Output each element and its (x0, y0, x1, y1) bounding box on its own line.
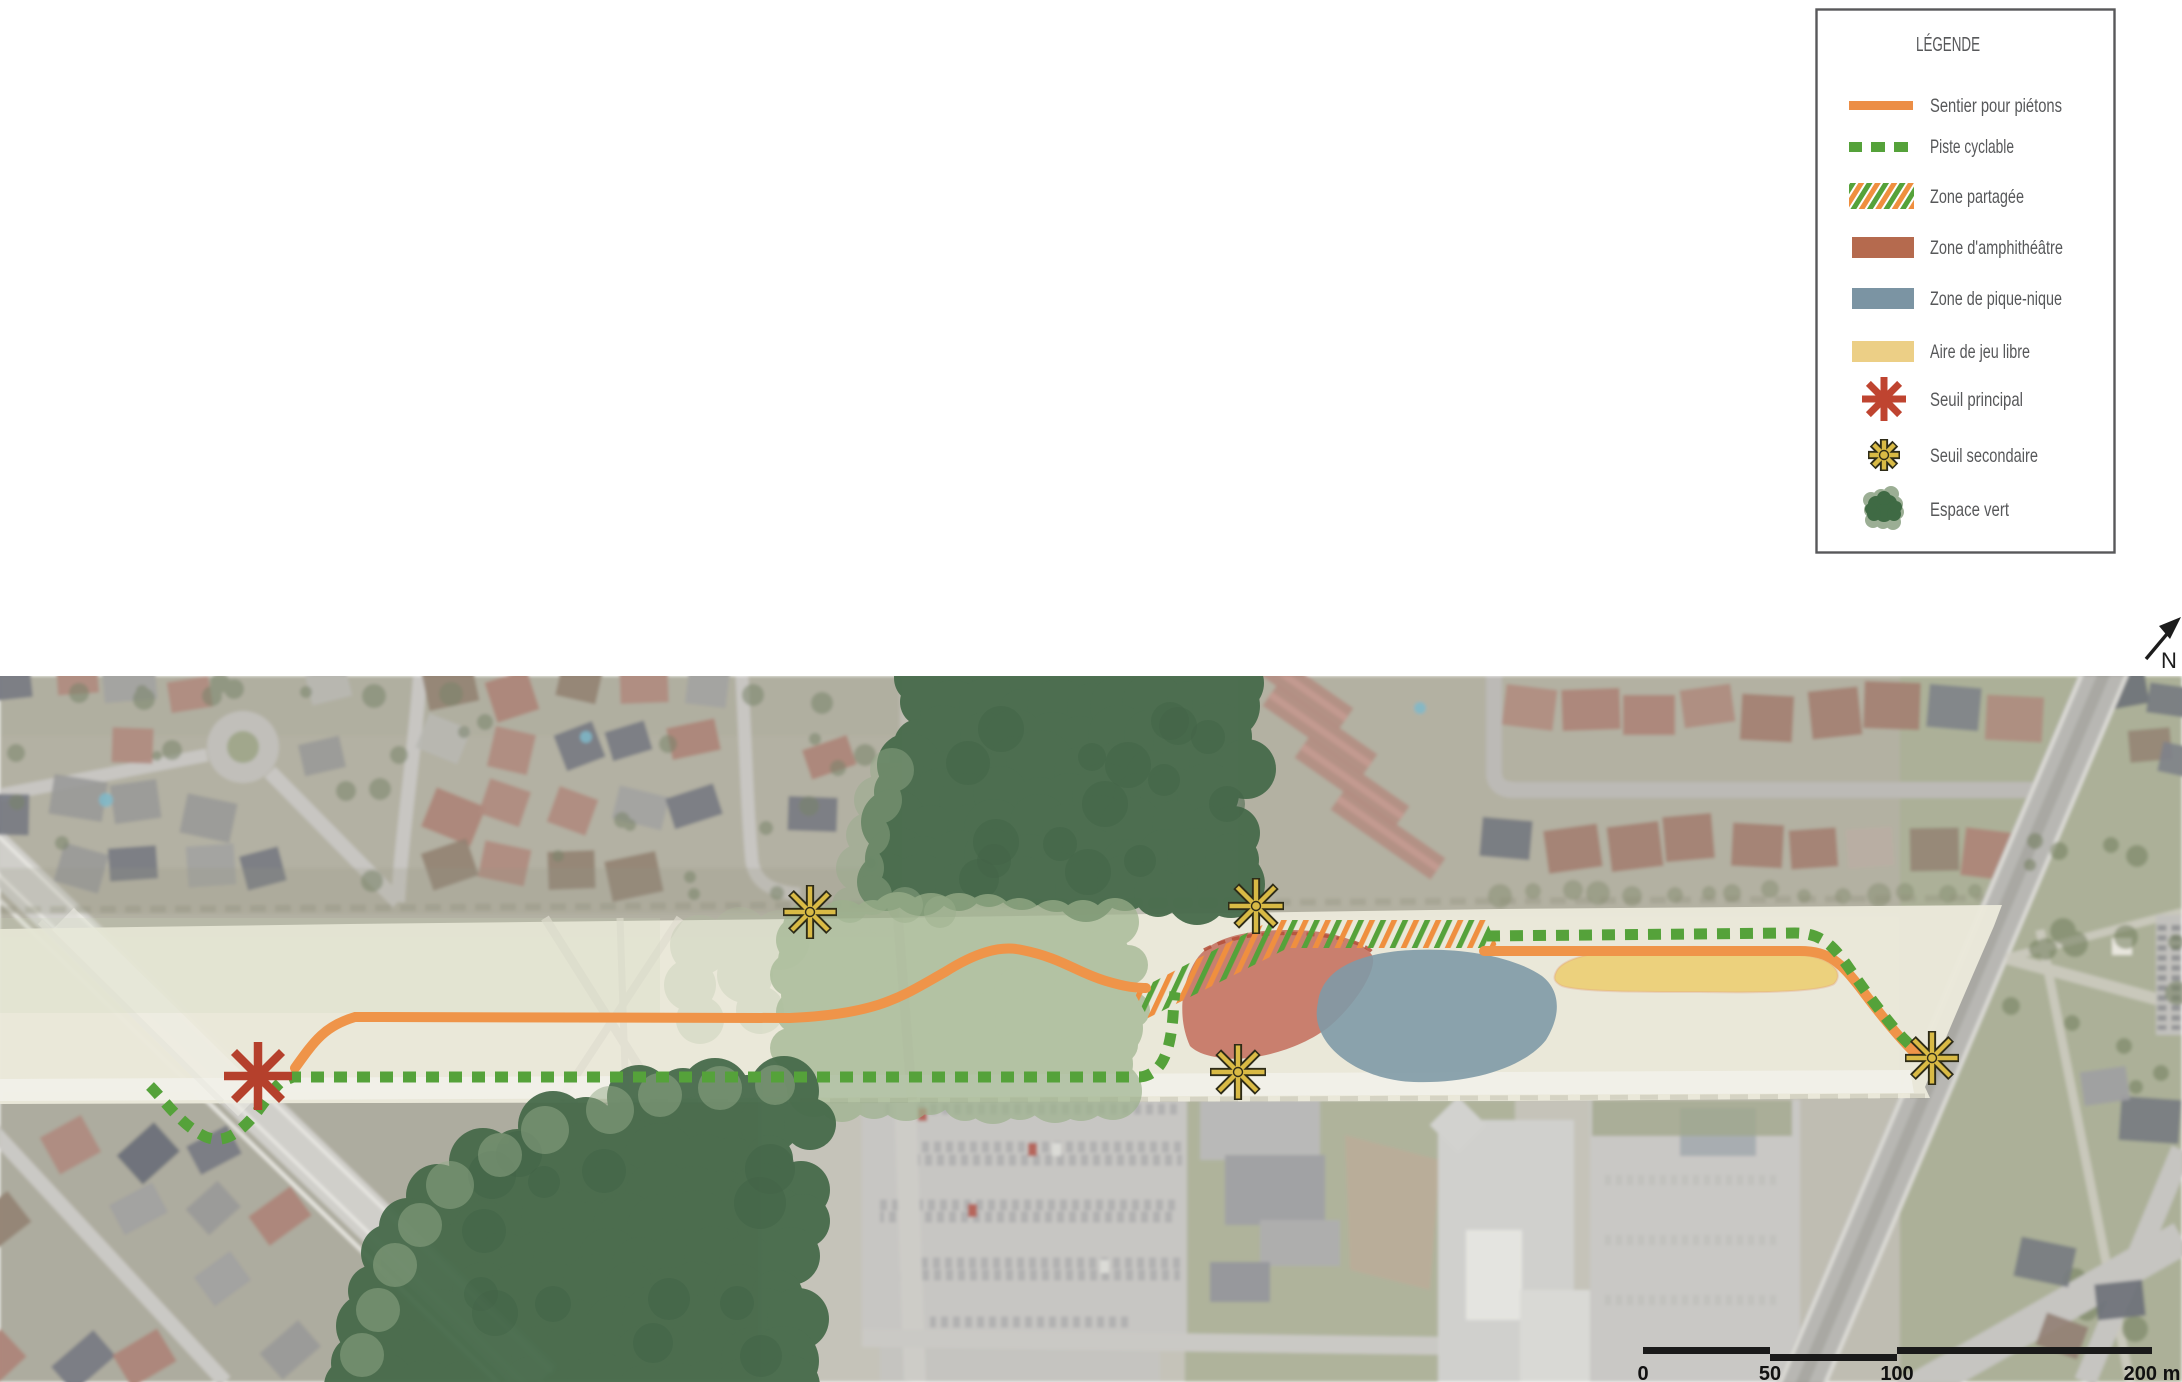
svg-text:Zone de pique-nique: Zone de pique-nique (1930, 288, 2062, 310)
svg-text:LÉGENDE: LÉGENDE (1916, 33, 1980, 56)
svg-text:50: 50 (1759, 1363, 1781, 1382)
svg-text:0: 0 (1637, 1363, 1648, 1382)
svg-text:Seuil secondaire: Seuil secondaire (1930, 445, 2038, 467)
svg-text:Espace vert: Espace vert (1930, 499, 2009, 521)
svg-text:Seuil principal: Seuil principal (1930, 389, 2023, 411)
svg-text:200 m: 200 m (2124, 1363, 2181, 1382)
svg-text:100: 100 (1880, 1363, 1913, 1382)
svg-text:Zone partagée: Zone partagée (1930, 186, 2024, 208)
svg-text:Piste cyclable: Piste cyclable (1930, 136, 2014, 158)
svg-text:N: N (2161, 648, 2177, 673)
svg-text:Sentier pour piétons: Sentier pour piétons (1930, 95, 2062, 117)
svg-text:Zone d'amphithéâtre: Zone d'amphithéâtre (1930, 237, 2063, 259)
svg-text:Aire de jeu libre: Aire de jeu libre (1930, 341, 2030, 363)
